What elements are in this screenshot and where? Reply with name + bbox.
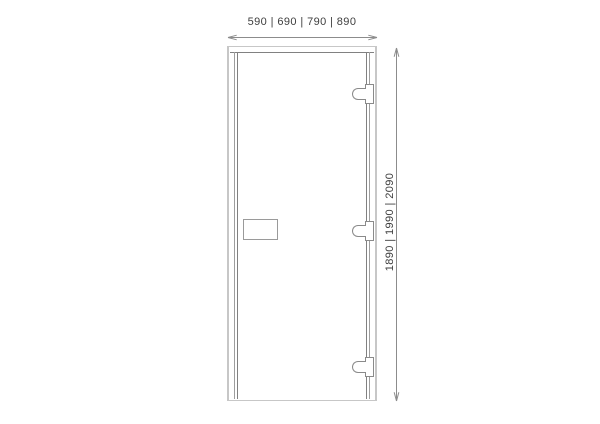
hinge-plate-icon	[365, 84, 374, 104]
hinge-knuckle-icon	[352, 88, 366, 100]
width-dimension-label: 590 | 690 | 790 | 890	[227, 16, 377, 28]
hinge-plate-icon	[365, 221, 374, 241]
height-dimension-label: 1890 | 1990 | 2090	[384, 122, 396, 322]
height-dimension-line	[396, 49, 397, 401]
door-dimension-diagram: 590 | 690 | 790 | 890	[0, 0, 600, 424]
arrow-left-icon	[228, 33, 238, 43]
arrow-right-icon	[367, 33, 377, 43]
width-dimension-line	[229, 37, 375, 38]
hinge-knuckle-icon	[352, 361, 366, 373]
arrow-down-icon	[392, 392, 402, 402]
hinge-knuckle-icon	[352, 225, 366, 237]
arrow-up-icon	[392, 48, 402, 58]
frame-bottom-edge	[227, 400, 377, 401]
hinge-plate-icon	[365, 357, 374, 377]
frame-left-edge	[227, 46, 229, 401]
frame-right-edge	[375, 46, 377, 401]
frame-top-edge	[227, 46, 377, 47]
handle-plate	[243, 219, 278, 240]
leaf-left-stile-outer	[234, 52, 235, 399]
